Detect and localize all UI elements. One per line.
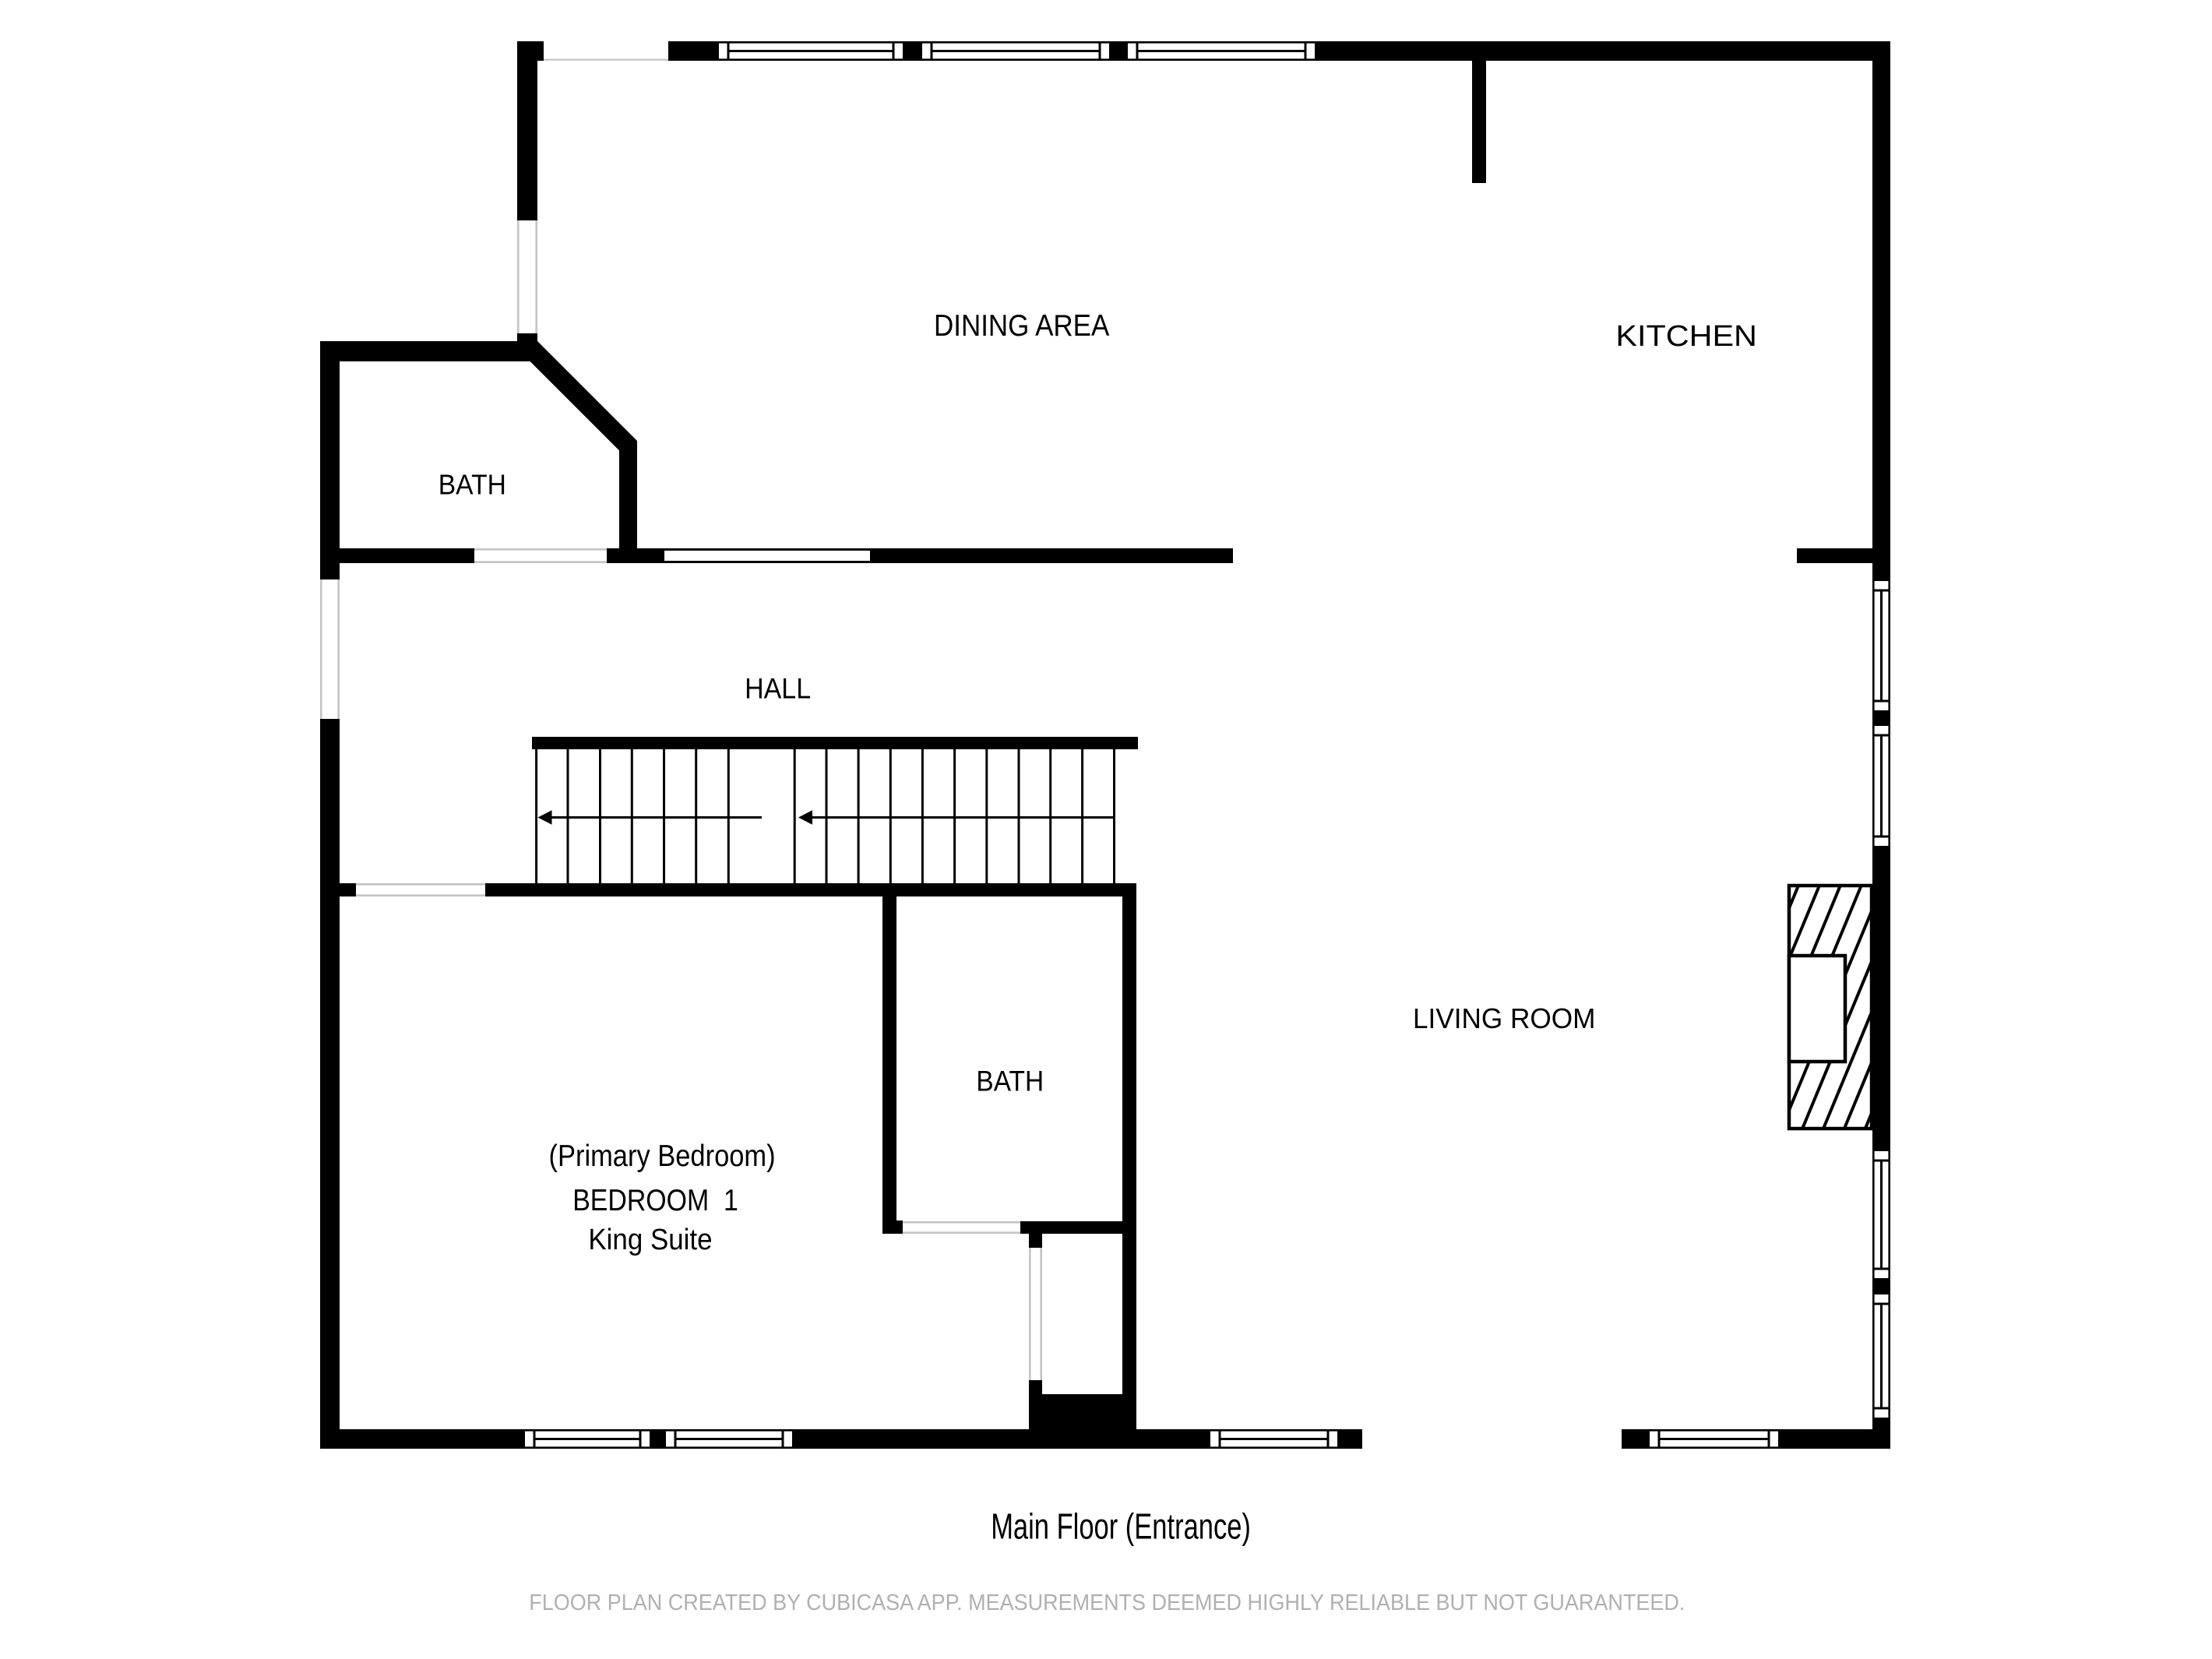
svg-text:FLOOR PLAN CREATED BY CUBICASA: FLOOR PLAN CREATED BY CUBICASA APP. MEAS… [529,1590,1685,1615]
svg-text:King Suite: King Suite [588,1224,712,1256]
svg-text:KITCHEN: KITCHEN [1615,319,1757,352]
svg-text:BEDROOM 1: BEDROOM 1 [572,1184,738,1217]
svg-text:LIVING ROOM: LIVING ROOM [1413,1002,1595,1034]
svg-text:BATH: BATH [976,1065,1044,1097]
svg-text:Main Floor (Entrance): Main Floor (Entrance) [991,1506,1251,1547]
svg-text:(Primary Bedroom): (Primary Bedroom) [549,1139,776,1173]
svg-text:BATH: BATH [439,468,506,500]
svg-text:DINING AREA: DINING AREA [934,309,1109,343]
svg-text:HALL: HALL [745,672,811,705]
